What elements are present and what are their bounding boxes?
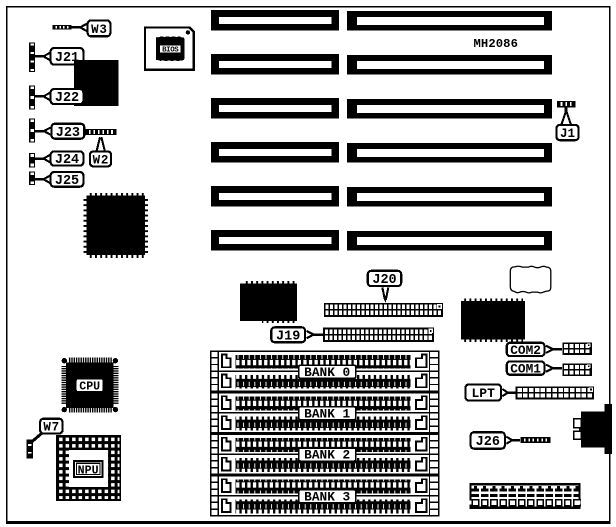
svg-text:BANK 2: BANK 2 [304, 448, 350, 463]
svg-text:LPT: LPT [471, 386, 495, 401]
svg-text:NPU: NPU [78, 464, 99, 477]
svg-text:W 7: W 7 [43, 421, 59, 435]
svg-text:J23: J23 [56, 126, 80, 141]
svg-text:BANK 0: BANK 0 [304, 365, 350, 380]
svg-text:W 3: W 3 [91, 23, 107, 37]
svg-text:J20: J20 [372, 273, 396, 288]
svg-text:BANK 1: BANK 1 [304, 406, 350, 421]
svg-text:BIOS: BIOS [162, 47, 179, 55]
svg-text:BANK 3: BANK 3 [304, 489, 350, 504]
svg-text:J19: J19 [276, 329, 300, 344]
svg-text:COM1: COM1 [510, 362, 541, 377]
svg-text:J22: J22 [55, 91, 79, 106]
svg-text:CPU: CPU [79, 381, 100, 394]
svg-text:J26: J26 [476, 435, 500, 450]
svg-text:J24: J24 [55, 153, 79, 168]
svg-text:COM2: COM2 [510, 343, 541, 358]
svg-text:W 2: W 2 [93, 154, 109, 168]
svg-text:MH2086: MH2086 [474, 37, 518, 51]
svg-text:J25: J25 [55, 174, 79, 189]
svg-text:J1: J1 [560, 127, 575, 141]
